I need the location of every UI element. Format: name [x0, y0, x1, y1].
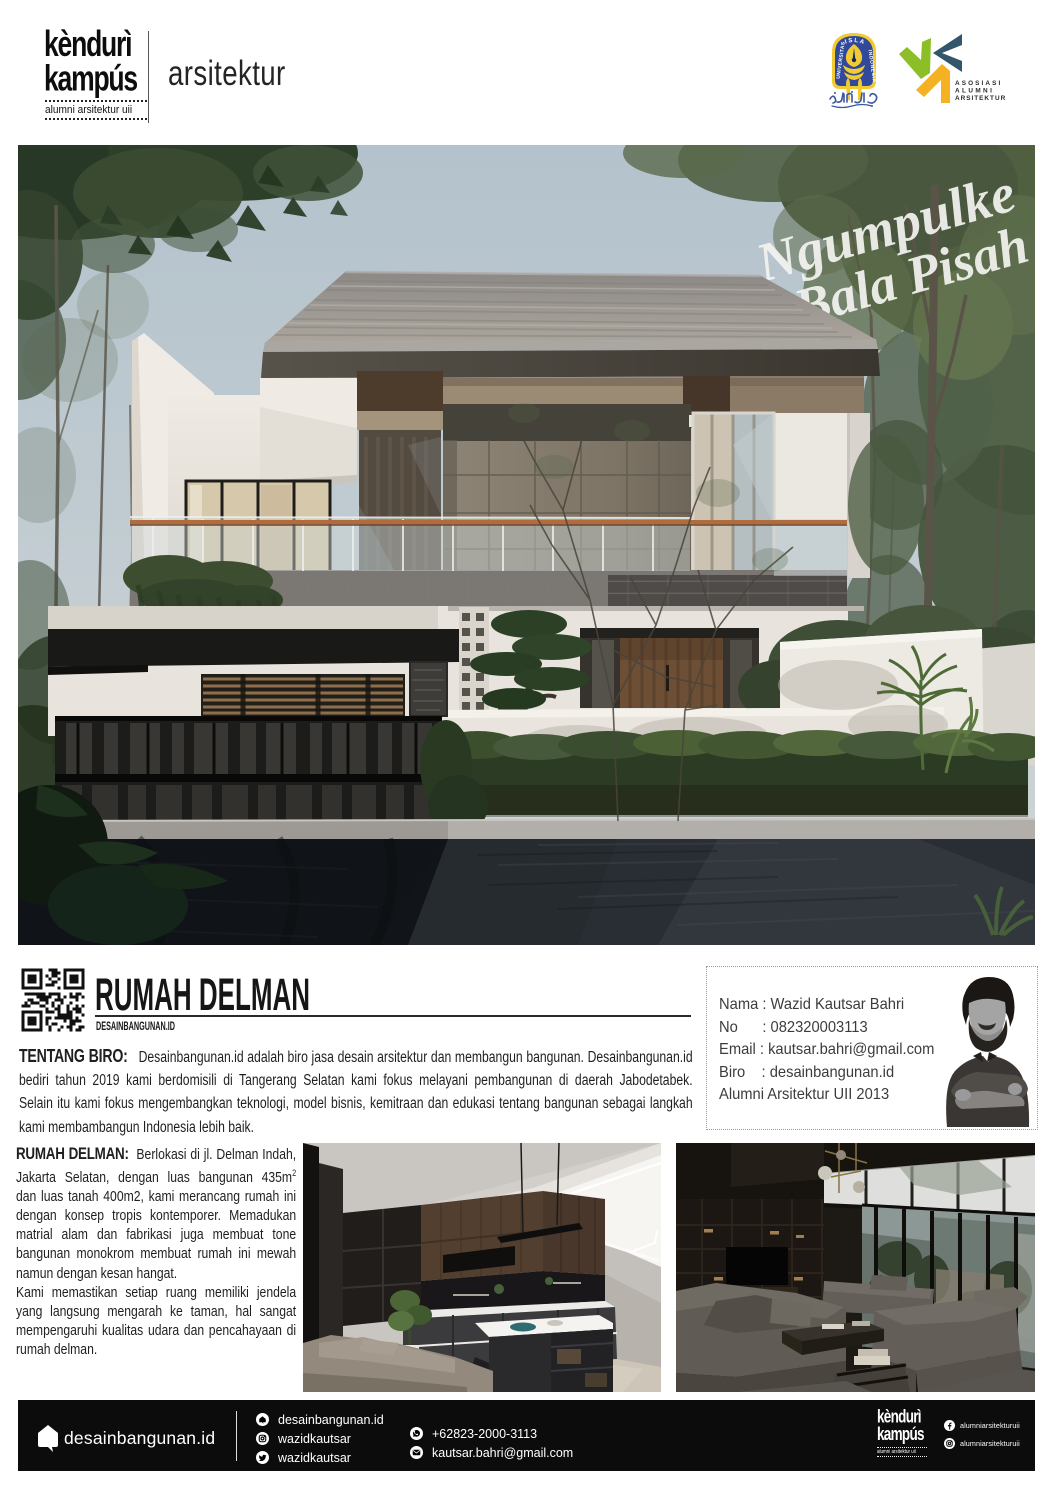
svg-text:ALUMNI: ALUMNI [955, 88, 994, 95]
svg-text:ASOSIASI: ASOSIASI [955, 80, 1002, 87]
svg-text:DESAINBANGUNAN.ID: DESAINBANGUNAN.ID [96, 1019, 175, 1033]
svg-text:RUMAH DELMAN: RUMAH DELMAN [95, 969, 310, 1016]
svg-text:ARSITEKTUR: ARSITEKTUR [955, 95, 1006, 102]
